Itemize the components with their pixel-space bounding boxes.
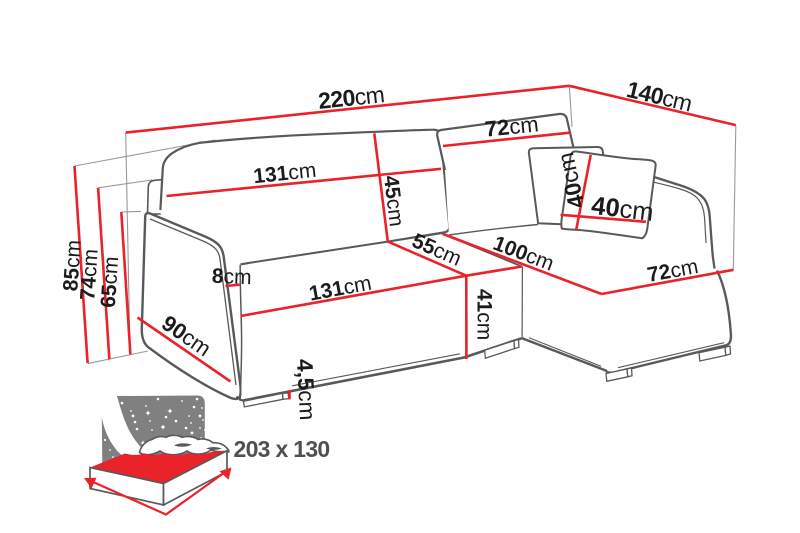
svg-text:8cm: 8cm: [211, 265, 251, 289]
svg-text:41cm: 41cm: [473, 289, 496, 340]
svg-text:65cm: 65cm: [97, 256, 123, 309]
svg-text:203 x 130: 203 x 130: [234, 436, 330, 462]
svg-text:4,5cm: 4,5cm: [292, 358, 320, 421]
